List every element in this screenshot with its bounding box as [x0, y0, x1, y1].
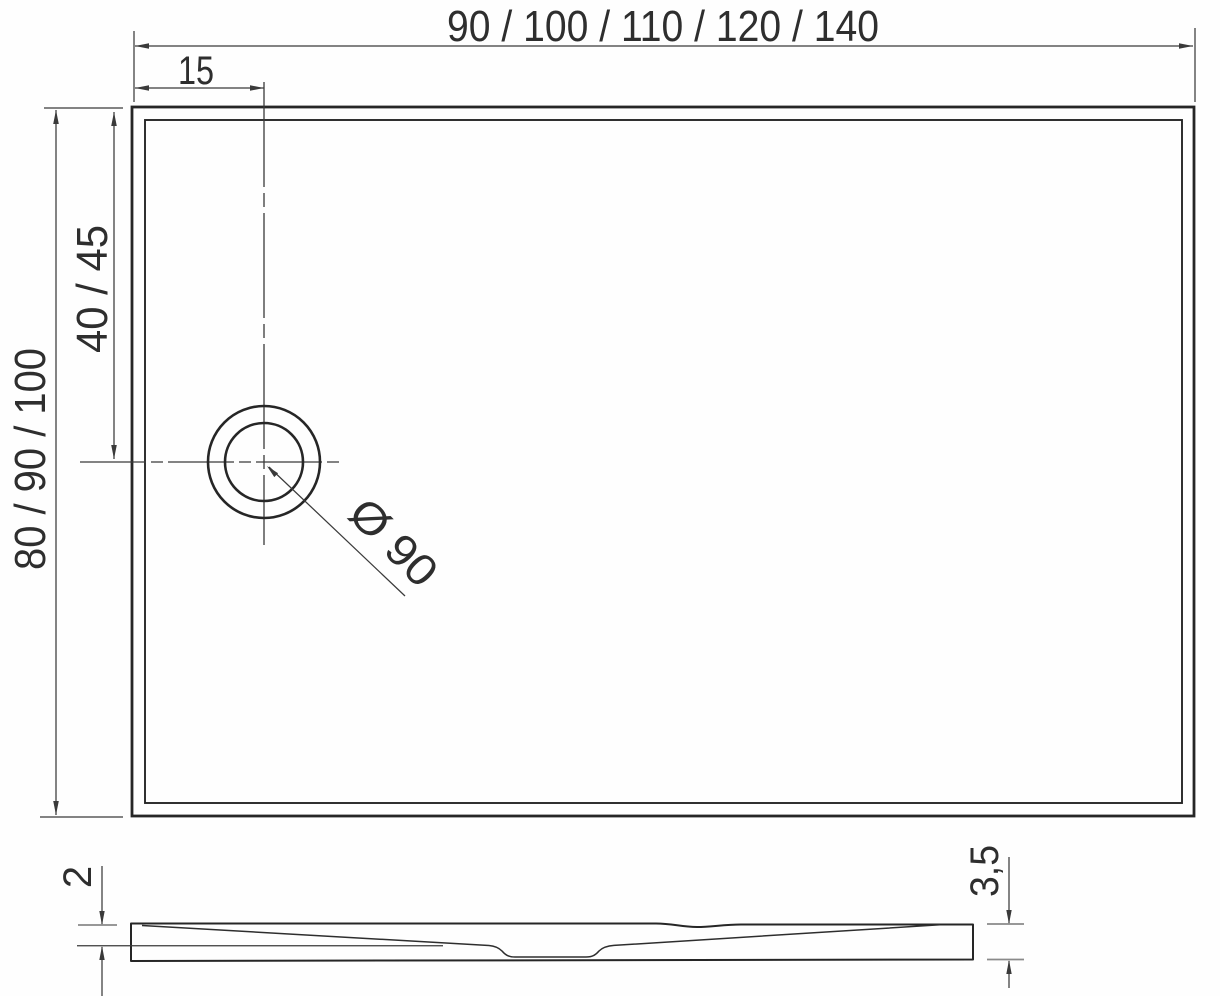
shower-tray-technical-drawing: 90 / 100 / 110 / 120 / 140 15 80 / 90 / … — [0, 0, 1220, 996]
technical-drawing-page: 90 / 100 / 110 / 120 / 140 15 80 / 90 / … — [0, 0, 1220, 996]
drain: Ø 90 — [80, 82, 447, 597]
overall-height-arrow-up — [1006, 960, 1011, 974]
tray-profile-floor-slope-left — [142, 926, 489, 946]
tray-profile-drain-recess-and-slope-right — [489, 925, 940, 957]
drain-offset-v-arrow-top — [111, 112, 117, 126]
tray-profile-outline — [131, 924, 973, 962]
overall-height-label: 3,5 — [963, 845, 1007, 897]
rim-thickness-dimension: 2 — [56, 866, 117, 996]
width-arrow-right — [1179, 43, 1193, 49]
drain-offset-h-label: 15 — [178, 49, 214, 93]
drain-offset-h-arrow-right — [250, 85, 264, 91]
drain-offset-horizontal-dimension: 15 — [135, 49, 264, 93]
side-view: 2 3,5 — [56, 845, 1024, 996]
width-dimension-label: 90 / 100 / 110 / 120 / 140 — [447, 2, 879, 51]
drain-leader-arrow — [267, 466, 278, 477]
depth-arrow-top — [53, 110, 59, 124]
drain-offset-h-arrow-left — [135, 85, 149, 91]
overall-height-dimension: 3,5 — [963, 845, 1024, 988]
width-arrow-left — [135, 43, 149, 49]
drain-offset-vertical-dimension: 40 / 45 — [68, 112, 117, 459]
width-dimension: 90 / 100 / 110 / 120 / 140 — [134, 2, 1195, 102]
drain-offset-v-arrow-bottom — [111, 445, 117, 459]
top-view: 90 / 100 / 110 / 120 / 140 15 80 / 90 / … — [6, 2, 1195, 817]
depth-dimension-label: 80 / 90 / 100 — [6, 348, 55, 570]
drain-offset-v-label: 40 / 45 — [68, 225, 117, 353]
overall-height-arrow-down — [1006, 910, 1011, 924]
rim-thickness-label: 2 — [56, 866, 100, 888]
rim-thickness-arrow-up — [99, 946, 104, 960]
rim-thickness-arrow-down — [99, 911, 104, 925]
depth-arrow-bottom — [53, 801, 59, 815]
drain-diameter-label: Ø 90 — [339, 489, 447, 597]
